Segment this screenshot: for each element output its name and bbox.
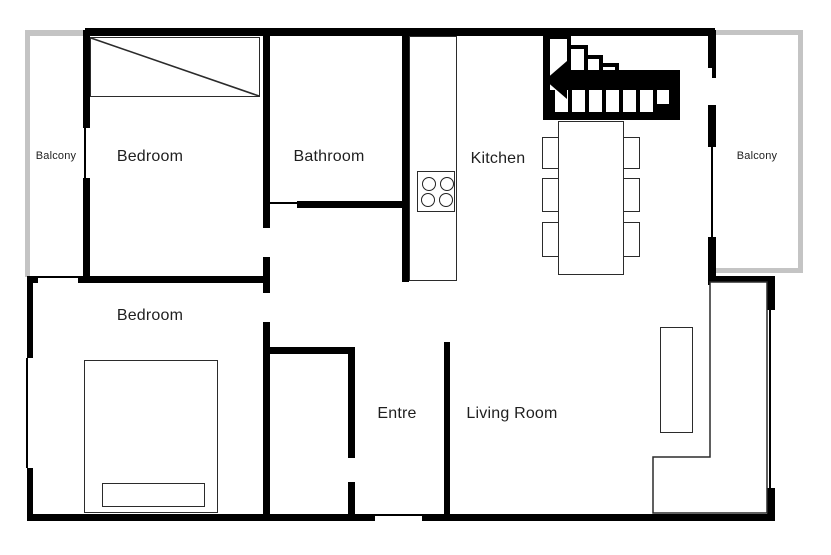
pillow: [102, 483, 205, 507]
wall-left-lower-b: [27, 468, 33, 521]
chair: [542, 137, 559, 169]
wall-bedroom-upper-left-b: [83, 178, 90, 283]
stairs: [543, 29, 680, 120]
chair: [542, 178, 559, 212]
wall-closet-right-b: [348, 482, 355, 521]
stove-burner: [439, 193, 453, 207]
balcony-left-wall-side: [25, 30, 30, 277]
wall-balcony-right-jamb: [712, 68, 716, 78]
wall-bedroom-lower-top-b: [78, 276, 270, 283]
room-label-bedroom-upper: Bedroom: [117, 148, 183, 166]
wall-closet-right-a: [348, 347, 355, 458]
window-balcony-right: [711, 147, 713, 237]
door-bedroom-lower: [38, 276, 78, 278]
stove-burner: [422, 177, 436, 191]
stairs-arrow-shaft: [563, 70, 673, 90]
balcony-right-wall-bottom: [715, 268, 803, 273]
wall-bottom-a: [27, 514, 375, 521]
wardrobe-diagonal-line: [91, 38, 259, 96]
wardrobe: [90, 37, 260, 97]
room-label-entre: Entre: [377, 405, 416, 423]
wall-entre-living: [444, 342, 450, 521]
room-label-balcony-right: Balcony: [737, 150, 778, 162]
stove-burner: [440, 177, 454, 191]
balcony-right-wall-side: [798, 30, 803, 273]
chair: [623, 137, 640, 169]
window-bedroom-lower: [26, 358, 28, 468]
wall-bedroom-upper-left-a: [83, 30, 90, 128]
wall-closet-top: [263, 347, 355, 354]
door-bathroom: [266, 202, 297, 204]
room-label-kitchen: Kitchen: [471, 150, 526, 168]
stove-burner: [421, 193, 435, 207]
wall-bathroom-bottom: [297, 201, 409, 208]
wall-left-lower-a: [27, 277, 33, 358]
window-bedroom-upper-balcony: [84, 128, 86, 178]
door-entrance: [375, 514, 422, 516]
balcony-right-wall-top: [715, 30, 803, 35]
chair: [542, 222, 559, 257]
dining-table: [558, 121, 624, 275]
chair: [623, 222, 640, 257]
wall-balcony-right-b: [708, 105, 716, 147]
wall-divider-a: [263, 30, 270, 228]
chair: [623, 178, 640, 212]
room-label-bathroom: Bathroom: [294, 148, 365, 166]
wall-bottom-b: [422, 514, 775, 521]
floor-plan: Balcony Bedroom Bathroom Kitchen Balcony…: [0, 0, 831, 555]
room-label-bedroom-lower: Bedroom: [117, 307, 183, 325]
room-label-living-room: Living Room: [466, 405, 557, 423]
wall-bedroom-lower-top-a: [27, 276, 38, 283]
sofa: [652, 281, 770, 515]
room-label-balcony-left: Balcony: [36, 150, 77, 162]
kitchen-counter: [409, 36, 457, 281]
wall-kitchen: [402, 30, 409, 282]
wall-divider-b: [263, 257, 270, 293]
wall-balcony-right-a: [708, 30, 716, 68]
balcony-left-wall-top: [25, 30, 85, 36]
